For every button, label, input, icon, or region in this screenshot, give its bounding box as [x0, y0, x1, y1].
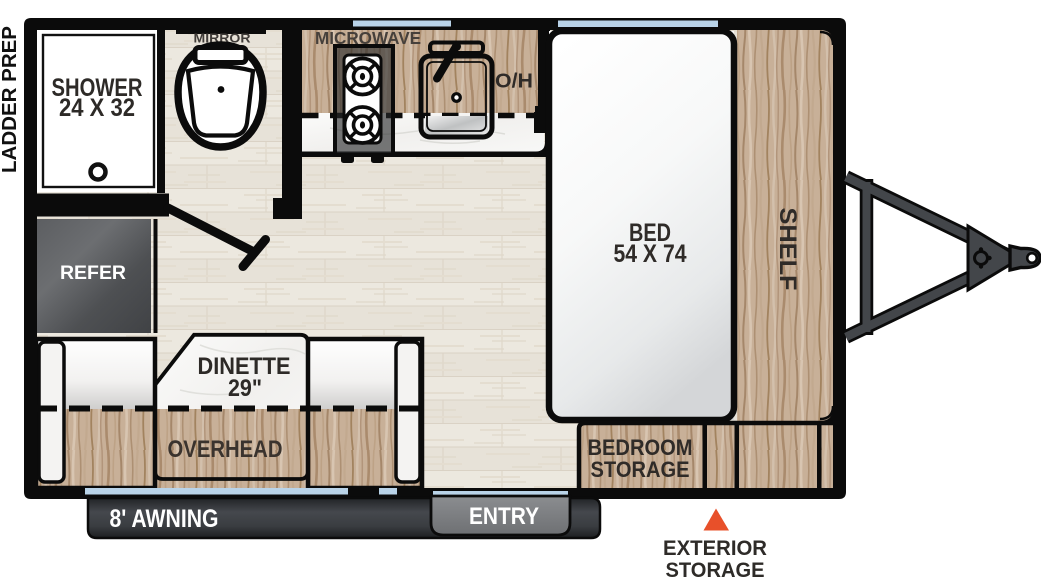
svg-text:STORAGE: STORAGE	[666, 558, 765, 579]
svg-text:54 X 74: 54 X 74	[614, 240, 687, 268]
svg-text:8' AWNING: 8' AWNING	[110, 505, 219, 533]
svg-text:29": 29"	[228, 375, 262, 402]
svg-text:24 X 32: 24 X 32	[59, 94, 135, 122]
svg-text:SHELF: SHELF	[774, 208, 801, 291]
svg-text:OVERHEAD: OVERHEAD	[168, 436, 283, 463]
svg-text:STORAGE: STORAGE	[591, 457, 690, 482]
svg-text:EXTERIOR: EXTERIOR	[663, 536, 767, 560]
svg-text:REFER: REFER	[60, 262, 126, 284]
svg-text:ENTRY: ENTRY	[469, 503, 539, 530]
svg-text:LADDER PREP: LADDER PREP	[0, 26, 21, 173]
svg-text:O/H: O/H	[495, 70, 533, 93]
